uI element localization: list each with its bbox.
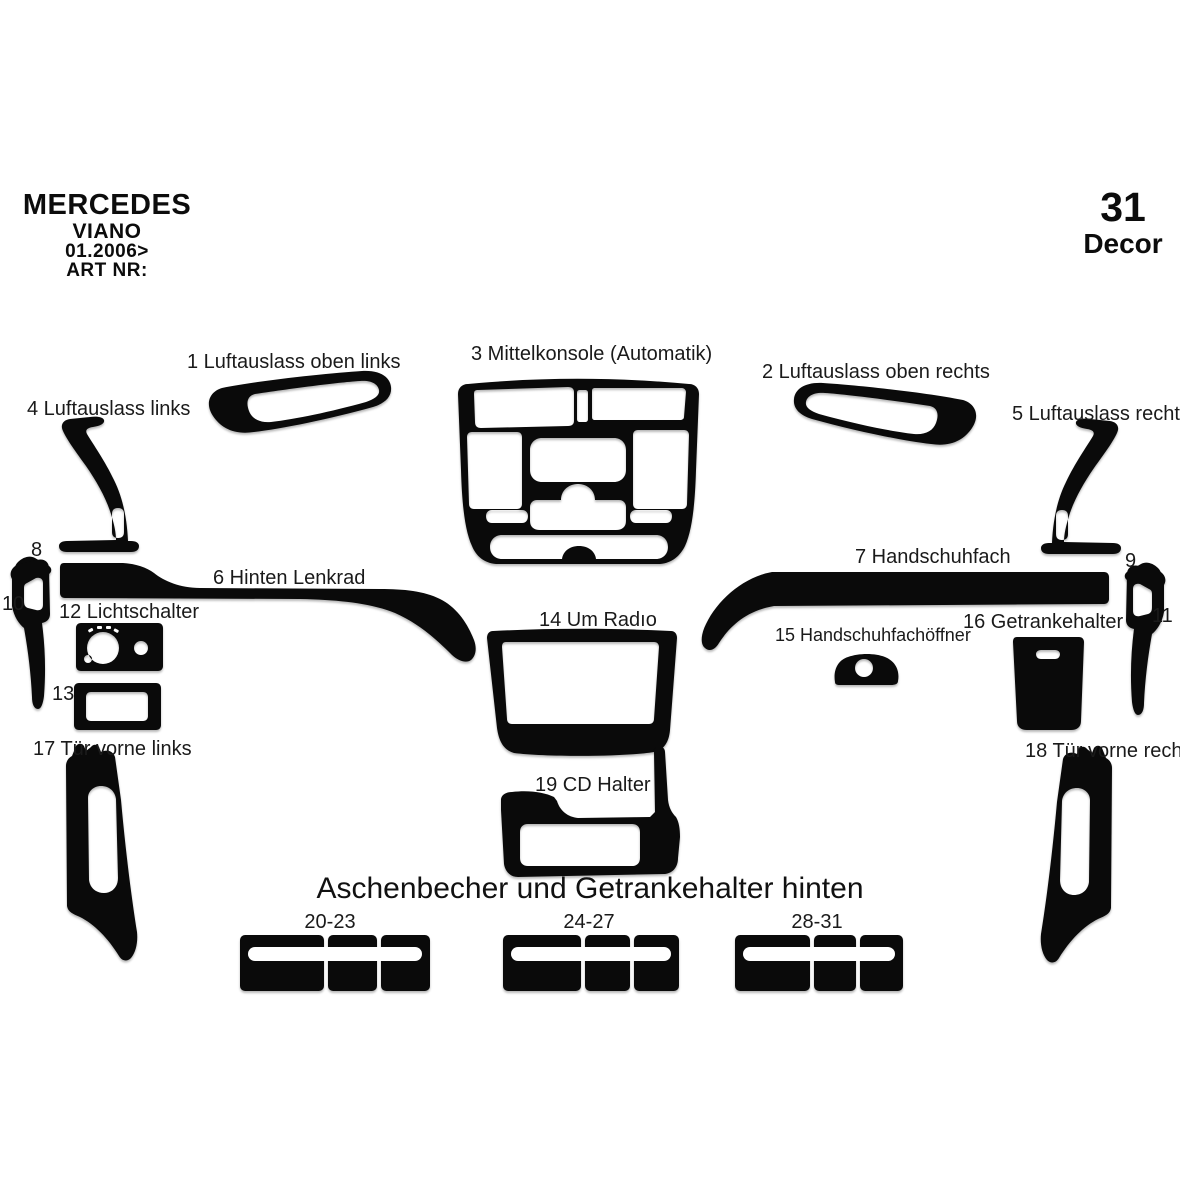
part-15-glovebox-opener-shape (835, 654, 899, 685)
part-label-8: 8 (31, 539, 42, 562)
group-28-31-slot (743, 947, 895, 961)
part-2-path (794, 383, 976, 445)
part-18-door-right-shape (1041, 746, 1112, 963)
part-3-center-console-shape (458, 379, 699, 564)
group-24-27-shape (503, 935, 679, 991)
part-1-vent-top-left-shape (209, 371, 391, 433)
part-19-cd-holder-shape (501, 747, 680, 877)
part-4-vent-left-shape (59, 417, 139, 552)
part-11-pillar-shape (1126, 565, 1165, 715)
part-label-17: 17 Tür vorne links (33, 738, 192, 761)
part-label-12: 12 Lichtschalter (59, 601, 199, 624)
part-label-18: 18 Tür vorne rechts (1025, 740, 1180, 763)
part-16-cup-holder-shape (1013, 637, 1084, 730)
part-label-6: 6 Hinten Lenkrad (213, 567, 365, 590)
part-14-radio-surround-shape (487, 629, 677, 756)
part-label-14: 14 Um Radıo (539, 609, 657, 632)
group-label-24-27: 24-27 (563, 911, 614, 934)
group-24-27-slot (511, 947, 671, 961)
group-28-31-shape (735, 935, 903, 991)
part-label-9: 9 (1125, 550, 1136, 573)
part-9-11-right-pillar (1125, 563, 1166, 715)
part-3-bottom-notch (562, 546, 596, 559)
part-5-path (1041, 419, 1121, 554)
group-20-23-shape (240, 935, 430, 991)
diagram-canvas: MERCEDES VIANO 01.2006> ART NR: 31 Decor (0, 0, 1180, 1180)
part-2-vent-top-right-shape (794, 383, 976, 445)
part-13-frame-shape (74, 683, 161, 730)
part-label-1: 1 Luftauslass oben links (187, 351, 400, 374)
bottom-section-heading: Aschenbecher und Getrankehalter hinten (316, 872, 863, 906)
part-label-16: 16 Getrankehalter (963, 611, 1123, 634)
group-label-20-23: 20-23 (304, 911, 355, 934)
part-17-door-left-shape (66, 744, 137, 961)
part-label-13: 13 (52, 683, 74, 706)
part-label-11: 11 (1152, 605, 1173, 628)
part-5-vent-right-shape (1041, 419, 1121, 554)
group-20-23-slot (248, 947, 422, 961)
group-label-28-31: 28-31 (791, 911, 842, 934)
part-label-19: 19 CD Halter (535, 774, 651, 797)
part-label-2: 2 Luftauslass oben rechts (762, 361, 990, 384)
part-label-5: 5 Luftauslass rechts (1012, 403, 1180, 426)
part-label-15: 15 Handschuhfachöffner (775, 625, 971, 646)
parts-illustration (0, 0, 1180, 1180)
part-10-pillar-shape (11, 559, 50, 709)
part-label-10: 10 (2, 593, 24, 616)
part-label-4: 4 Luftauslass links (27, 398, 190, 421)
part-label-7: 7 Handschuhfach (855, 546, 1011, 569)
part-label-3: 3 Mittelkonsole (Automatik) (471, 343, 712, 366)
part-18-path (1041, 746, 1112, 963)
